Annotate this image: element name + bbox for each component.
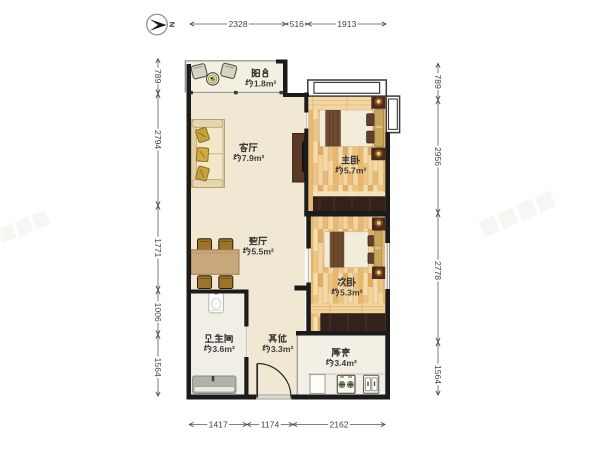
- svg-text:516: 516: [290, 19, 305, 29]
- svg-text:3.3m²: 3.3m²: [271, 344, 294, 354]
- svg-text:1006: 1006: [153, 303, 163, 322]
- svg-text:5.5m²: 5.5m²: [251, 247, 274, 257]
- svg-text:2778: 2778: [433, 261, 443, 280]
- svg-text:3.4m²: 3.4m²: [334, 358, 357, 368]
- svg-text:5.7m²: 5.7m²: [344, 166, 367, 176]
- svg-text:1913: 1913: [337, 19, 356, 29]
- svg-text:2162: 2162: [329, 420, 348, 430]
- svg-text:1771: 1771: [153, 238, 163, 257]
- svg-text:7.9m²: 7.9m²: [242, 153, 265, 163]
- svg-text:1.8m²: 1.8m²: [254, 79, 277, 89]
- svg-text:1564: 1564: [433, 365, 443, 384]
- svg-text:5.3m²: 5.3m²: [340, 288, 363, 298]
- svg-text:3.6m²: 3.6m²: [212, 344, 235, 354]
- svg-text:N: N: [168, 22, 177, 27]
- svg-text:1417: 1417: [209, 420, 228, 430]
- svg-text:2328: 2328: [228, 19, 247, 29]
- svg-text:1564: 1564: [153, 358, 163, 377]
- svg-text:789: 789: [153, 69, 163, 84]
- svg-text:2956: 2956: [433, 147, 443, 166]
- svg-text:789: 789: [433, 75, 443, 90]
- svg-text:2794: 2794: [153, 130, 163, 149]
- svg-text:1174: 1174: [261, 420, 280, 430]
